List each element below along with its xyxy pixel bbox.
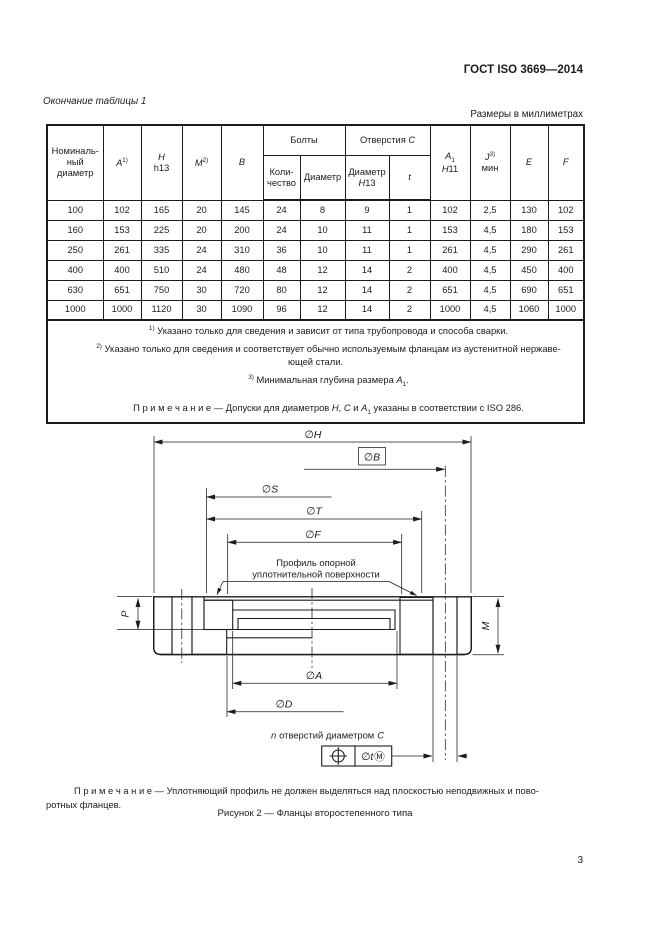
table-cell: 400 [548,260,584,280]
table-cell: 261 [103,240,141,260]
dim-label-P: P [120,610,132,617]
col-header-b: B [221,125,263,200]
table-cell: 24 [182,260,221,280]
extension-lines [117,436,504,762]
col-header-holes-t: t [389,156,430,201]
table-row: 6306517503072080121426514,5690651 [47,280,584,300]
table-cell: 1 [389,240,430,260]
document-page: ГОСТ ISO 3669—2014 Окончание таблицы 1 Р… [0,0,661,936]
dim-label-M: M [480,621,492,630]
table-cell: 24 [182,240,221,260]
table-cell: 750 [141,280,182,300]
table-cell: 160 [47,220,103,240]
seal-profile-section [204,600,233,629]
table-cell: 48 [263,260,300,280]
table-cell: 11 [345,220,389,240]
position-symbol-icon [330,748,347,764]
footnote-2: 2) Указано только для сведения и соответ… [50,340,581,369]
table-cell: 261 [430,240,470,260]
table-cell: 14 [345,280,389,300]
table-cell: 651 [103,280,141,300]
page-number: 3 [577,855,583,866]
table-cell: 200 [221,220,263,240]
table-cell: 180 [510,220,548,240]
table-cell: 225 [141,220,182,240]
table-cell: 14 [345,260,389,280]
table-cell: 130 [510,200,548,220]
table-cell: 2 [389,300,430,320]
table-note: П р и м е ч а н и е — Допуски для диамет… [50,401,581,419]
table-cell: 10 [300,240,345,260]
table-cell: 1060 [510,300,548,320]
dimensions-table: Номиналь-ныйдиаметр A1) Hh13 M2) B Болты… [46,124,585,424]
flange-hatched-sections [154,597,472,654]
col-header-f: F [548,125,584,200]
table-cell: 1000 [430,300,470,320]
table-cell: 100 [47,200,103,220]
table-cell: 651 [548,280,584,300]
table-cell: 1000 [103,300,141,320]
table-cell: 4,5 [470,260,510,280]
table-cell: 4,5 [470,220,510,240]
dim-label-S: ∅S [262,484,278,496]
col-header-h: Hh13 [141,125,182,200]
table-cell: 720 [221,280,263,300]
table-row: 1601532252020024101111534,5180153 [47,220,584,240]
table-cell: 2 [389,280,430,300]
table-cell: 14 [345,300,389,320]
table-cell: 2,5 [470,200,510,220]
table-cell: 102 [430,200,470,220]
table-cell: 4,5 [470,240,510,260]
table-cell: 1 [389,200,430,220]
document-code: ГОСТ ISO 3669—2014 [464,64,583,76]
table-cell: 1000 [47,300,103,320]
table-cell: 400 [47,260,103,280]
flange-section-drawing: ∅H ∅B ∅S ∅T ∅F ∅A ∅D P M Профиль опорной… [0,430,661,775]
col-group-holes: Отверстия C [345,125,430,156]
col-header-j: J3)мин [470,125,510,200]
table-row: 4004005102448048121424004,5450400 [47,260,584,280]
col-header-a1: A1H11 [430,125,470,200]
col-header-e: E [510,125,548,200]
seal-profile-leader: Профиль опорной уплотнительной поверхнос… [217,557,417,596]
col-group-bolts: Болты [263,125,345,156]
col-header-a: A1) [103,125,141,200]
table-cell: 450 [510,260,548,280]
table-cell: 24 [263,220,300,240]
table-cell: 102 [103,200,141,220]
table-cell: 12 [300,300,345,320]
table-cell: 510 [141,260,182,280]
table-cell: 153 [430,220,470,240]
table-cell: 335 [141,240,182,260]
table-cell: 4,5 [470,280,510,300]
table-cell: 690 [510,280,548,300]
table-cell: 30 [182,280,221,300]
table-cell: 11 [345,240,389,260]
table-cell: 102 [548,200,584,220]
table-header-row: Номиналь-ныйдиаметр A1) Hh13 M2) B Болты… [47,125,584,156]
table-row: 100010001120301090961214210004,510601000 [47,300,584,320]
figure-caption: Рисунок 2 — Фланцы второстепенного типа [46,808,584,819]
dim-label-F: ∅F [305,529,321,541]
table-cell: 651 [430,280,470,300]
col-header-bolts-dia: Диаметр [300,156,345,201]
dim-label-A: ∅A [306,670,322,682]
table-cell: 290 [510,240,548,260]
table-cell: 1000 [548,300,584,320]
table-cell: 480 [221,260,263,280]
table-row: 10010216520145248911022,5130102 [47,200,584,220]
units-label: Размеры в миллиметрах [470,109,583,120]
table-cell: 20 [182,220,221,240]
table-cell: 153 [103,220,141,240]
tolerance-value: ∅tⓂ [361,751,385,763]
table-cell: 153 [548,220,584,240]
table-cell: 9 [345,200,389,220]
table-cell: 261 [548,240,584,260]
table-cell: 10 [300,220,345,240]
table-cell: 1120 [141,300,182,320]
table-cell: 250 [47,240,103,260]
footnote-3: 3) Минимальная глубина размера A1. [50,371,581,392]
table-cell: 1090 [221,300,263,320]
table-cell: 145 [221,200,263,220]
table-continuation-label: Окончание таблицы 1 [43,96,146,107]
seal-note-line2: уплотнительной поверхности [252,569,380,580]
table-cell: 400 [103,260,141,280]
table-cell: 12 [300,260,345,280]
col-header-bolts-qty: Коли-чество [263,156,300,201]
table-cell: 4,5 [470,300,510,320]
table-cell: 80 [263,280,300,300]
table-cell: 165 [141,200,182,220]
col-header-m: M2) [182,125,221,200]
table-cell: 24 [263,200,300,220]
footnotes-row: 1) Указано только для сведения и зависит… [47,320,584,423]
table-cell: 630 [47,280,103,300]
table-cell: 2 [389,260,430,280]
table-cell: 8 [300,200,345,220]
table-cell: 310 [221,240,263,260]
col-header-holes-dia: ДиаметрH13 [345,156,389,201]
table-cell: 12 [300,280,345,300]
table-row: 2502613352431036101112614,5290261 [47,240,584,260]
spec-table-body: 10010216520145248911022,5130102160153225… [47,200,584,320]
seal-note-line1: Профиль опорной [276,557,355,568]
holes-count-note: nотверстий диаметромC [271,730,384,741]
dim-label-B: ∅B [364,451,380,463]
table-cell: 30 [182,300,221,320]
dim-label-H: ∅H [305,430,322,441]
footnote-1: 1) Указано только для сведения и зависит… [50,322,581,338]
dim-label-T: ∅T [306,506,323,518]
table-cell: 36 [263,240,300,260]
table-cell: 400 [430,260,470,280]
table-cell: 20 [182,200,221,220]
col-header-nominal: Номиналь-ныйдиаметр [47,125,103,200]
table-cell: 96 [263,300,300,320]
dim-label-D: ∅D [276,699,293,711]
flange-outline [154,597,472,655]
footnotes-block: 1) Указано только для сведения и зависит… [47,320,584,423]
table-cell: 1 [389,220,430,240]
